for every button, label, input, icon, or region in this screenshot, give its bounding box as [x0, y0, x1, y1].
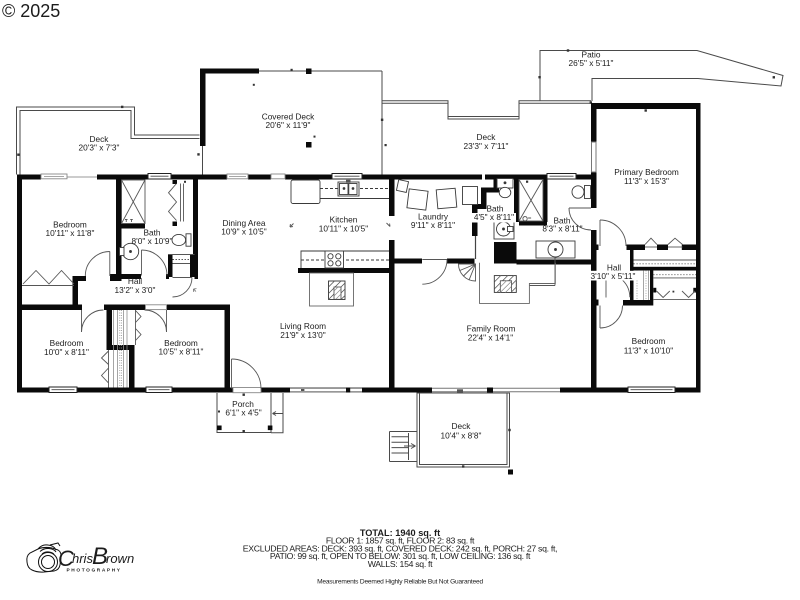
svg-text:11'3" x 10'10": 11'3" x 10'10" [624, 346, 674, 356]
svg-text:10'4" x 8'8": 10'4" x 8'8" [441, 431, 482, 441]
svg-text:26'5" x 5'11": 26'5" x 5'11" [569, 58, 614, 68]
svg-text:© 2025: © 2025 [2, 1, 60, 21]
svg-text:WALLS: 154 sq. ft: WALLS: 154 sq. ft [368, 559, 433, 569]
svg-text:4'5" x 8'11": 4'5" x 8'11" [474, 212, 514, 222]
svg-text:Measurements Deemed Highly Rel: Measurements Deemed Highly Reliable But … [317, 579, 483, 586]
svg-text:9'11" x 8'11": 9'11" x 8'11" [411, 220, 455, 230]
svg-text:rown: rown [106, 551, 134, 566]
svg-text:10'11" x 10'5": 10'11" x 10'5" [319, 224, 369, 234]
svg-text:3'10" x 5'11": 3'10" x 5'11" [591, 271, 636, 281]
svg-text:10'9" x 10'5": 10'9" x 10'5" [221, 226, 267, 236]
svg-text:13'2" x 3'0": 13'2" x 3'0" [115, 285, 156, 295]
svg-text:23'3" x 7'11": 23'3" x 7'11" [464, 141, 509, 151]
svg-text:Bedroom: Bedroom [632, 336, 666, 346]
svg-text:PHOTOGRAPHY: PHOTOGRAPHY [67, 568, 122, 574]
svg-text:10'11" x 11'8": 10'11" x 11'8" [46, 228, 95, 238]
svg-text:21'9" x 13'0": 21'9" x 13'0" [280, 330, 326, 340]
svg-text:8'3" x 8'11": 8'3" x 8'11" [542, 224, 582, 234]
svg-text:10'5" x 8'11": 10'5" x 8'11" [159, 347, 204, 357]
svg-text:22'4" x 14'1": 22'4" x 14'1" [468, 333, 514, 343]
svg-text:20'3" x 7'3": 20'3" x 7'3" [79, 143, 120, 153]
svg-text:6'1" x 4'5": 6'1" x 4'5" [225, 408, 261, 418]
svg-text:11'3" x 15'3": 11'3" x 15'3" [624, 176, 669, 186]
svg-text:Deck: Deck [452, 421, 472, 431]
svg-text:8'0" x 10'9": 8'0" x 10'9" [132, 236, 173, 246]
svg-text:10'0" x 8'11": 10'0" x 8'11" [44, 347, 89, 357]
svg-text:20'6" x 11'9": 20'6" x 11'9" [266, 120, 311, 130]
svg-text:hris: hris [72, 551, 93, 566]
